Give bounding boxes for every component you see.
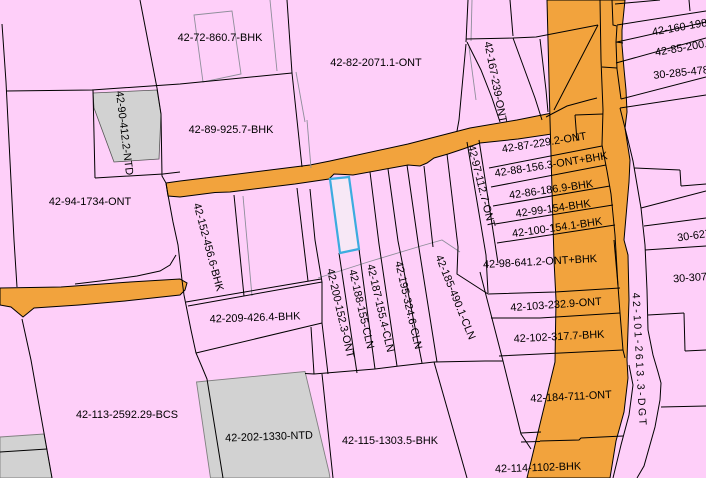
svg-text:30-3070: 30-3070 bbox=[673, 271, 706, 286]
svg-text:42-115-1303.5-BHK: 42-115-1303.5-BHK bbox=[342, 435, 439, 447]
svg-text:42-94-1734-ONT: 42-94-1734-ONT bbox=[49, 196, 132, 208]
svg-text:42-72-860.7-BHK: 42-72-860.7-BHK bbox=[178, 32, 263, 44]
svg-text:42-82-2071.1-ONT: 42-82-2071.1-ONT bbox=[330, 57, 422, 69]
svg-text:42-89-925.7-BHK: 42-89-925.7-BHK bbox=[189, 124, 274, 136]
svg-text:42-113-2592.29-BCS: 42-113-2592.29-BCS bbox=[76, 409, 178, 421]
